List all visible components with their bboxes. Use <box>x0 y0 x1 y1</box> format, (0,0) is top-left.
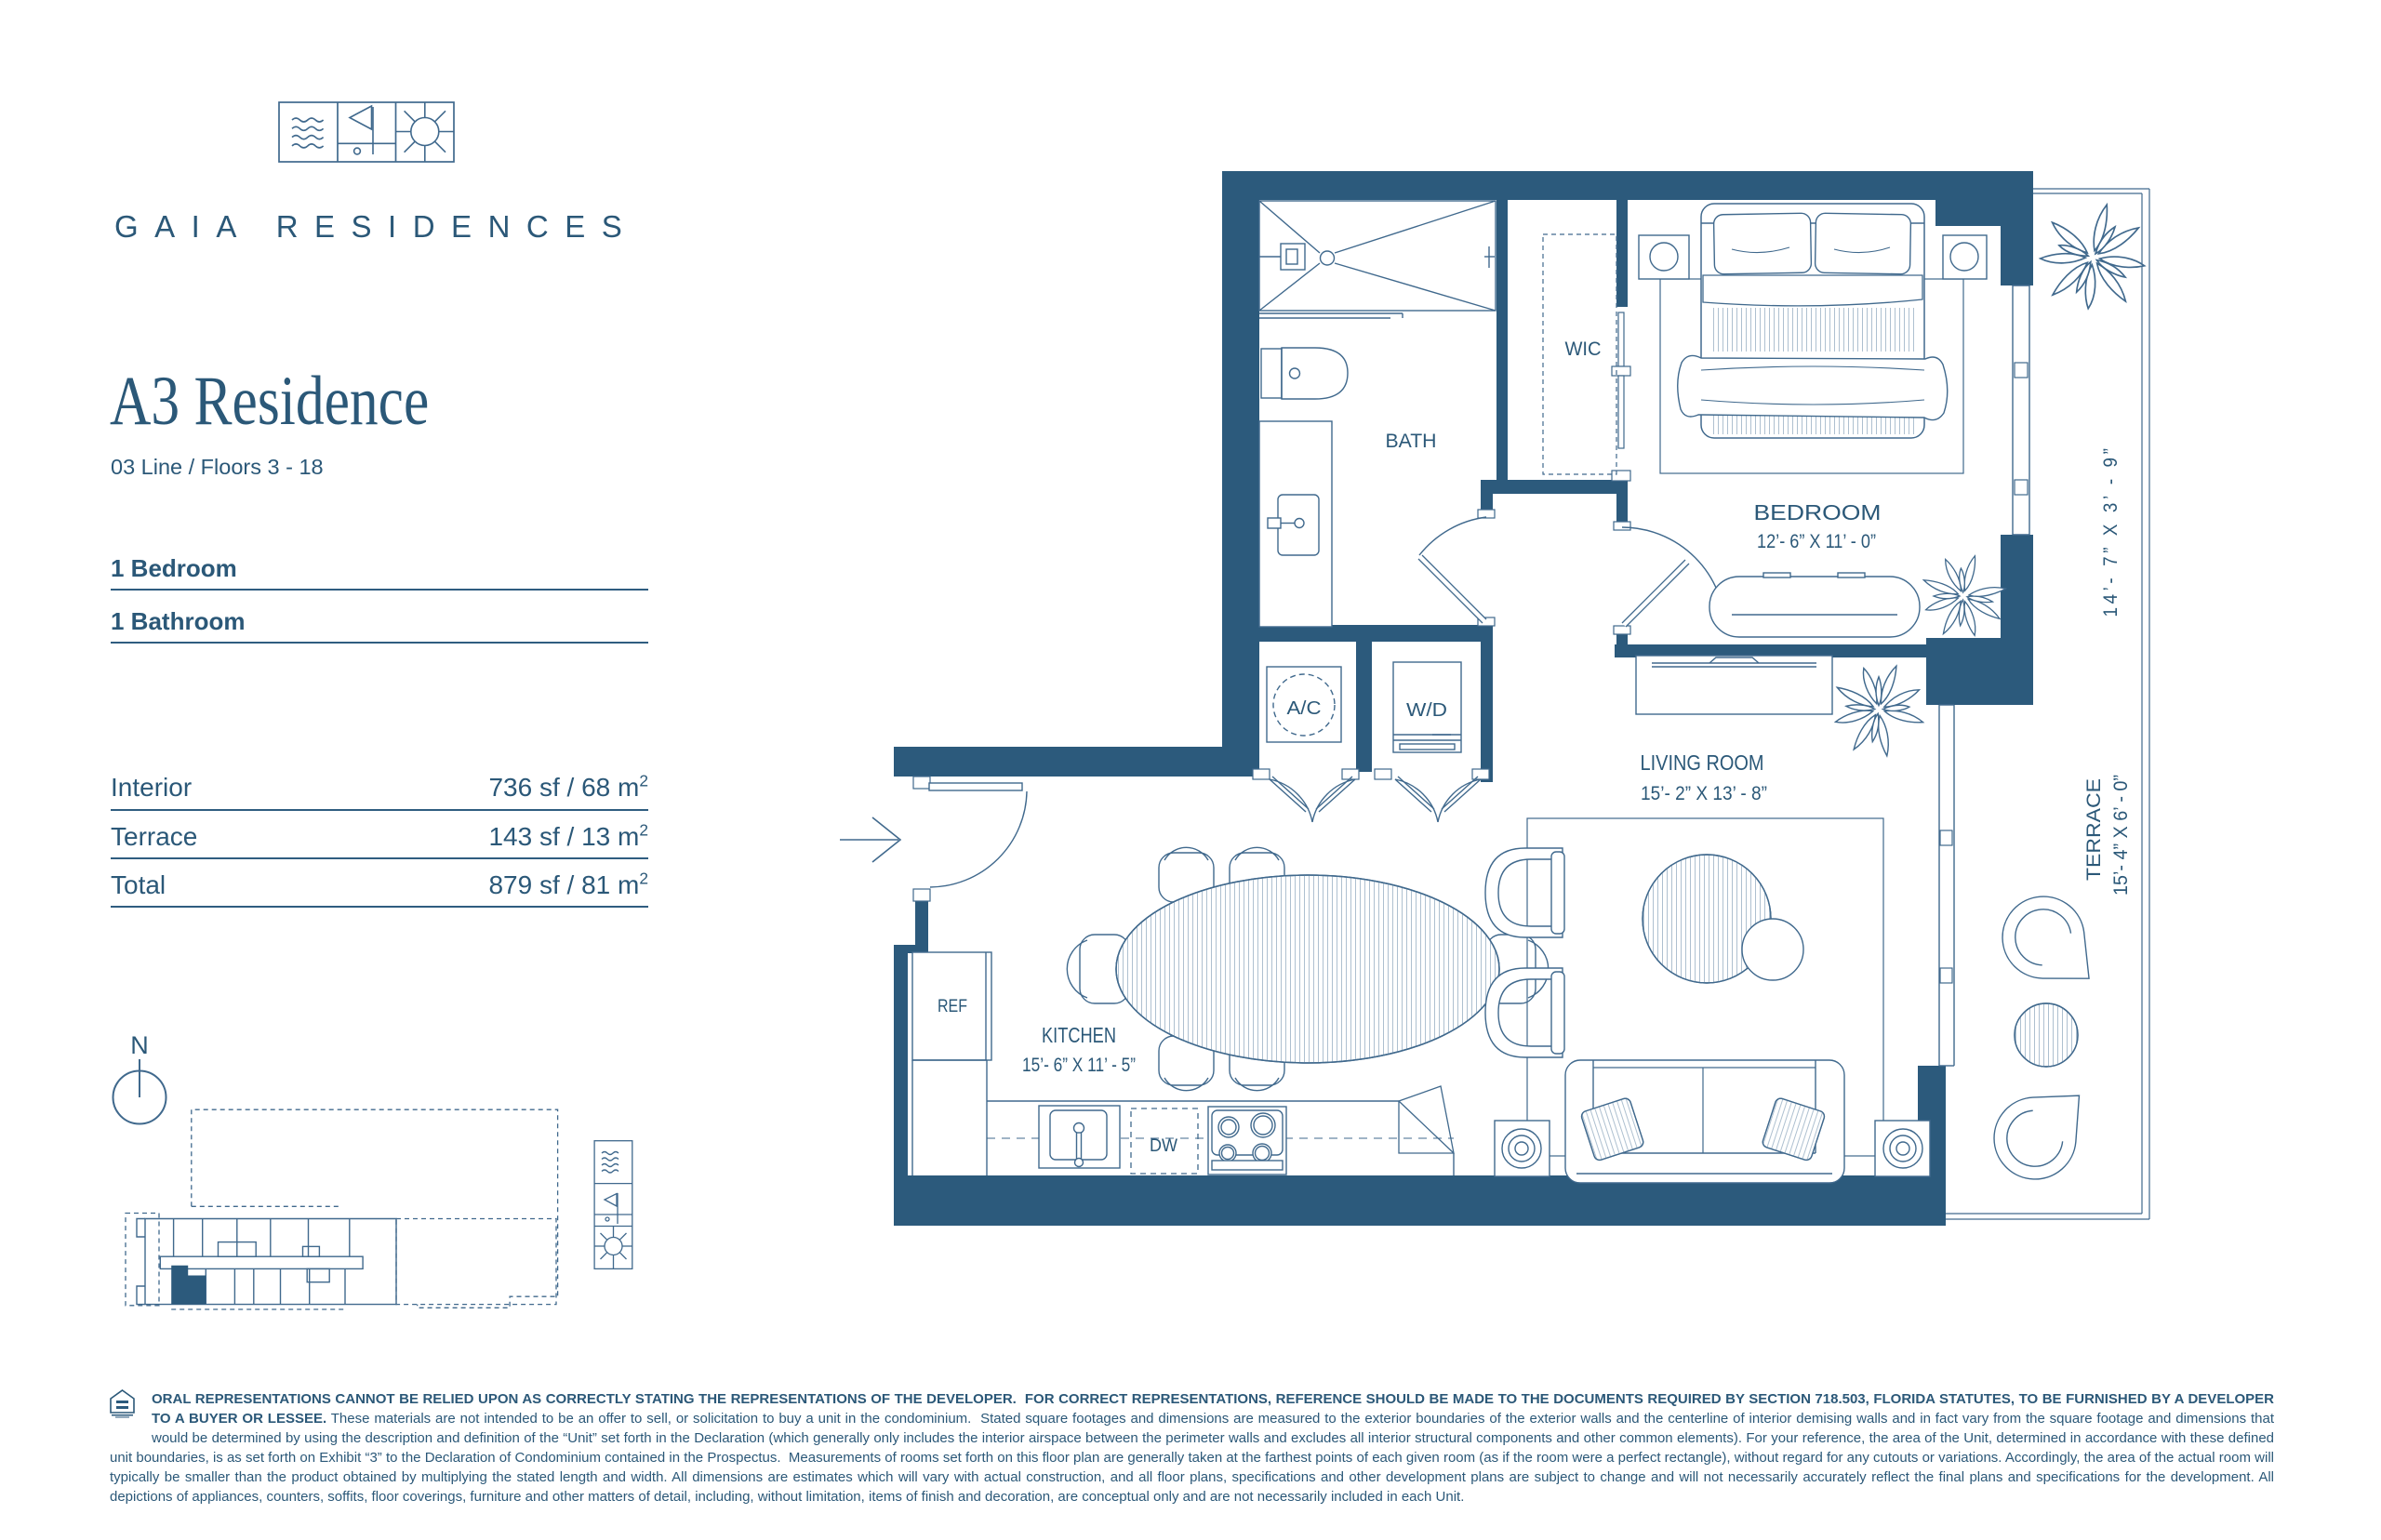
svg-text:12’- 6” X 11’ - 0”: 12’- 6” X 11’ - 0” <box>1757 531 1876 552</box>
svg-text:TERRACE: TERRACE <box>2083 778 2105 881</box>
svg-text:14’- 7” X 3’ - 9”: 14’- 7” X 3’ - 9” <box>2100 445 2122 617</box>
svg-text:N: N <box>130 1031 149 1059</box>
svg-text:BATH: BATH <box>1386 431 1437 452</box>
svg-text:15’- 4” X 6’ - 0”: 15’- 4” X 6’ - 0” <box>2110 775 2132 896</box>
svg-text:KITCHEN: KITCHEN <box>1042 1023 1116 1047</box>
svg-text:A/C: A/C <box>1287 698 1322 719</box>
svg-text:W/D: W/D <box>1406 700 1447 721</box>
svg-text:LIVING ROOM: LIVING ROOM <box>1641 750 1764 775</box>
svg-text:DW: DW <box>1150 1136 1177 1156</box>
svg-text:REF: REF <box>938 997 967 1016</box>
svg-text:15’- 6” X 11’ - 5”: 15’- 6” X 11’ - 5” <box>1022 1055 1136 1076</box>
svg-text:BEDROOM: BEDROOM <box>1754 500 1882 524</box>
svg-text:15’- 2” X 13’ - 8”: 15’- 2” X 13’ - 8” <box>1641 783 1767 804</box>
svg-text:WIC: WIC <box>1565 339 1602 360</box>
